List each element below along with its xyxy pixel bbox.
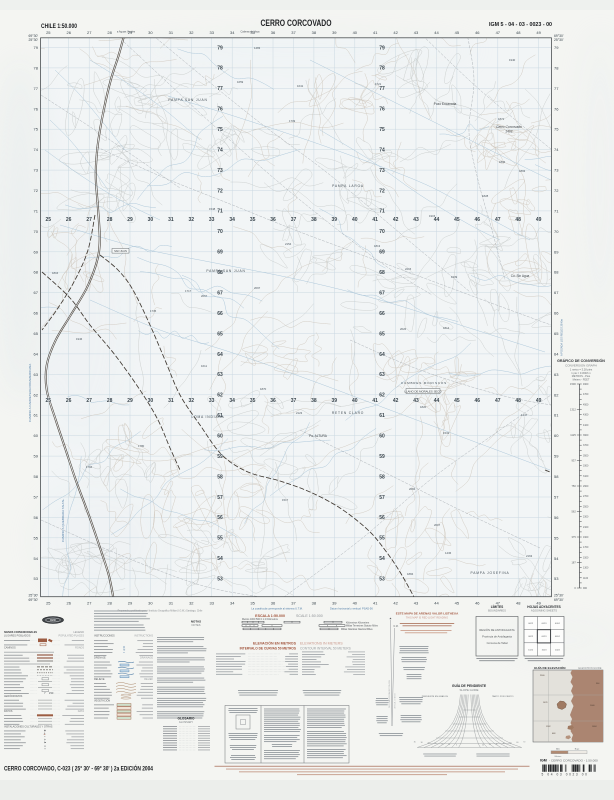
svg-text:63: 63 [554,372,559,377]
svg-text:39: 39 [332,217,338,223]
svg-text:1517: 1517 [282,498,289,502]
svg-text:46: 46 [475,398,481,404]
svg-text:1780: 1780 [138,444,145,448]
svg-text:63: 63 [217,372,223,378]
svg-text:70: 70 [523,742,525,744]
svg-text:4100: 4100 [583,424,589,427]
svg-text:HOJAS ADYACENTES: HOJAS ADYACENTES [527,605,560,609]
svg-text:49: 49 [536,217,542,223]
svg-text:Bajo: Bajo [575,748,580,750]
svg-text:33: 33 [209,600,214,605]
svg-text:57: 57 [379,495,385,501]
svg-text:PENDIENTE EN GRADOS: PENDIENTE EN GRADOS [422,695,449,698]
svg-text:28: 28 [107,398,113,404]
svg-text:31: 31 [168,398,174,404]
svg-text:64: 64 [217,352,223,358]
svg-text:2067: 2067 [201,294,208,298]
svg-text:76: 76 [379,107,385,113]
svg-text:30: 30 [421,742,423,744]
svg-text:ADJOINING SHEETS: ADJOINING SHEETS [531,609,557,613]
svg-text:RELIEF: RELIEF [144,678,153,681]
svg-text:37: 37 [291,600,296,605]
svg-text:RELIEVE: RELIEVE [94,678,105,681]
svg-text:SIGNOS CONVENCIONALES: SIGNOS CONVENCIONALES [4,630,37,634]
svg-text:59: 59 [554,454,559,459]
svg-text:71: 71 [554,208,559,213]
svg-text:1447: 1447 [521,413,528,417]
svg-text:25: 25 [46,398,52,404]
svg-text:ELEVACIÓN EN METROS: ELEVACIÓN EN METROS [253,641,297,646]
svg-text:4700: 4700 [583,393,589,396]
svg-text:1023: 1023 [542,649,548,651]
svg-text:77: 77 [554,86,559,91]
svg-text:1794: 1794 [86,465,93,469]
svg-text:METROS - Pies: METROS - Pies [572,374,591,378]
svg-text:79: 79 [217,45,223,51]
svg-text:PAMPA SAN JUAN: PAMPA SAN JUAN [168,98,207,102]
svg-text:60: 60 [554,433,559,438]
svg-text:AERÓDROMOS: AERÓDROMOS [4,695,23,698]
svg-text:38: 38 [311,217,317,223]
svg-text:55: 55 [554,535,559,540]
svg-text:26: 26 [66,600,71,605]
svg-text:PAMPA SAN JUAN: PAMPA SAN JUAN [206,269,245,273]
svg-text:37: 37 [291,30,296,35]
svg-text:79: 79 [379,45,385,51]
svg-text:38: 38 [312,30,317,35]
svg-text:1820: 1820 [420,405,427,409]
svg-text:54: 54 [34,556,39,561]
svg-text:2300: 2300 [583,516,589,519]
svg-text:62: 62 [554,392,559,397]
svg-text:73: 73 [379,168,385,174]
svg-text:69°30': 69°30' [554,598,564,602]
svg-text:NOTAS: NOTAS [191,620,201,624]
svg-text:46: 46 [475,600,480,605]
svg-text:47: 47 [495,217,501,223]
svg-text:25: 25 [46,217,52,223]
svg-text:1900: 1900 [583,536,589,539]
svg-text:46: 46 [475,217,481,223]
svg-text:IGM: IGM [540,758,547,762]
svg-text:SCALE 1:50.000: SCALE 1:50.000 [296,614,323,618]
svg-text:★: ★ [389,617,392,621]
svg-text:0023: 0023 [542,636,548,638]
svg-text:78: 78 [379,66,385,72]
svg-text:78: 78 [217,66,223,72]
svg-text:INSTRUCTIONS: INSTRUCTIONS [134,635,153,638]
svg-text:2215: 2215 [405,267,412,271]
svg-text:76: 76 [34,106,39,111]
svg-text:49: 49 [536,398,542,404]
svg-text:1806: 1806 [499,160,506,164]
svg-text:GRÁFICO DE CONVERSIÓN: GRÁFICO DE CONVERSIÓN [557,358,605,363]
svg-text:LÍMITES: LÍMITES [491,604,504,609]
svg-text:77: 77 [379,86,385,92]
svg-text:55: 55 [379,536,385,542]
svg-text:70: 70 [34,229,39,234]
svg-text:28: 28 [107,600,112,605]
svg-text:#30: #30 [49,691,54,695]
svg-text:1500: 1500 [570,382,576,386]
svg-text:36: 36 [271,30,276,35]
svg-text:25: 25 [46,600,51,605]
svg-text:64: 64 [554,351,559,356]
svg-text:64: 64 [34,351,39,356]
svg-text:70: 70 [554,229,559,234]
svg-text:69: 69 [554,249,559,254]
svg-text:36: 36 [271,600,276,605]
svg-text:CAMINO A QUEBRADA TALTAL: CAMINO A QUEBRADA TALTAL [61,499,65,542]
svg-text:38: 38 [312,600,317,605]
svg-text:36: 36 [270,398,276,404]
svg-text:ANNUAL CHANGE: ANNUAL CHANGE [394,692,397,708]
svg-text:40: 40 [353,600,358,605]
svg-text:33: 33 [209,398,215,404]
svg-text:67: 67 [217,291,223,297]
svg-text:62: 62 [217,393,223,399]
svg-text:1125: 1125 [570,433,576,437]
svg-text:49: 49 [536,30,541,35]
svg-text:68: 68 [34,270,39,275]
svg-text:41: 41 [372,398,378,404]
svg-text:34: 34 [229,217,235,223]
svg-text:30: 30 [496,744,498,746]
svg-text:56: 56 [217,515,223,521]
svg-text:53: 53 [379,577,385,583]
svg-text:1828: 1828 [482,194,489,198]
svg-text:BOUNDARIES: BOUNDARIES [488,609,506,613]
svg-text:25: 25 [428,743,430,745]
svg-text:43: 43 [413,398,419,404]
svg-text:34: 34 [229,398,235,404]
svg-text:SAN JUAN: SAN JUAN [114,249,127,253]
svg-text:1915: 1915 [429,214,436,218]
svg-text:A POSADA LOS RIELES 28 Km: A POSADA LOS RIELES 28 Km [560,319,564,356]
svg-text:1641: 1641 [297,84,304,88]
svg-text:20: 20 [434,743,436,745]
svg-text:RETEN CLARO: RETEN CLARO [332,411,364,415]
svg-text:62: 62 [379,393,385,399]
svg-text:39: 39 [332,398,338,404]
svg-text:30: 30 [148,30,153,35]
svg-text:59: 59 [34,454,39,459]
svg-text:Cerro Corcovado: Cerro Corcovado [496,125,522,129]
svg-text:1483: 1483 [254,46,261,50]
svg-text:1717: 1717 [185,289,192,293]
svg-text:63: 63 [379,372,385,378]
svg-text:562: 562 [571,510,576,514]
svg-text:DRAINAGE: DRAINAGE [140,657,153,660]
svg-text:N.M.: N.M. [394,625,399,628]
svg-text:900: 900 [583,587,588,590]
svg-text:64: 64 [379,352,385,358]
svg-text:1870: 1870 [260,387,267,391]
svg-text:1939: 1939 [451,275,458,279]
svg-text:NOTES: NOTES [192,623,201,627]
svg-text:34: 34 [230,600,235,605]
svg-text:69°30': 69°30' [28,598,38,602]
svg-text:SLOPE GUIDE: SLOPE GUIDE [460,688,479,692]
svg-text:56: 56 [34,515,39,520]
svg-text:45: 45 [454,398,460,404]
svg-text:Comuna de Taltal: Comuna de Taltal [487,641,508,645]
svg-text:39: 39 [332,30,337,35]
svg-text:1436: 1436 [445,551,452,555]
svg-text:La cuadrícula corresponde al s: La cuadrícula corresponde al sistema U.T… [251,607,303,611]
svg-text:Y: Y [44,691,46,695]
svg-text:0624: 0624 [555,636,561,638]
svg-text:32: 32 [189,30,194,35]
svg-text:CONVERSION GRAPH: CONVERSION GRAPH [565,363,597,367]
svg-text:ESTE MAPA DE ARENAS VALOR LIST: ESTE MAPA DE ARENAS VALOR LISTHEUA [396,612,459,616]
svg-text:69: 69 [379,250,385,256]
svg-text:66: 66 [217,311,223,317]
svg-text:78: 78 [554,65,559,70]
svg-text:65: 65 [554,331,559,336]
svg-text:72: 72 [379,188,385,194]
svg-text:68: 68 [554,270,559,275]
svg-text:70: 70 [217,229,223,235]
svg-text:70: 70 [379,229,385,235]
svg-text:58: 58 [379,474,385,480]
svg-text:1611: 1611 [201,364,207,368]
svg-text:2123: 2123 [296,411,303,415]
svg-text:31: 31 [169,30,174,35]
svg-text:44: 44 [434,30,439,35]
svg-text:26: 26 [66,217,72,223]
svg-text:CAMINOS: CAMINOS [4,647,16,650]
svg-text:187: 187 [571,561,576,565]
svg-text:0622: 0622 [528,636,534,638]
svg-text:46: 46 [475,30,480,35]
svg-text:50: 50 [510,743,512,745]
svg-text:Metros 1000 500: Metros 1000 500 0 1 2 Kilómetros [242,618,279,621]
svg-text:3300: 3300 [583,465,589,468]
svg-text:Provincia de Antofagasta: Provincia de Antofagasta [482,635,512,639]
svg-text:25: 25 [46,30,51,35]
svg-text:42: 42 [393,30,398,35]
svg-text:DRENAJE: DRENAJE [94,657,106,660]
svg-text:39: 39 [332,600,337,605]
svg-text:2007: 2007 [434,523,441,527]
svg-text:65: 65 [379,331,385,337]
svg-text:IGM 5 - 04 - 03 - 0023 - 00: IGM 5 - 04 - 03 - 0023 - 00 [489,22,552,28]
svg-text:57: 57 [217,495,223,501]
svg-text:71: 71 [379,209,385,215]
svg-text:75: 75 [379,127,385,133]
svg-text:26: 26 [66,30,71,35]
svg-text:57: 57 [554,495,559,500]
svg-text:THIS MAP IS RED LIGHT READING: THIS MAP IS RED LIGHT READING [406,615,448,619]
svg-text:58: 58 [34,474,39,479]
svg-text:ELEVATIONS IN METERS: ELEVATIONS IN METERS [300,642,343,646]
svg-text:2500: 2500 [583,505,589,508]
svg-text:POPULATED PLACES: POPULATED PLACES [58,635,84,638]
svg-text:78: 78 [34,65,39,70]
svg-text:VEGETACIÓN: VEGETACIÓN [94,700,110,703]
svg-text:1 pie = 0.3048 m: 1 pie = 0.3048 m [571,371,590,375]
svg-text:LLANO DE MORALES SECO: LLANO DE MORALES SECO [405,389,443,393]
svg-text:48: 48 [516,30,521,35]
svg-text:1893: 1893 [519,169,526,173]
svg-text:Po. ALTURA: Po. ALTURA [309,434,328,438]
svg-text:54: 54 [379,556,385,562]
svg-text:45: 45 [455,600,460,605]
svg-text:1532: 1532 [443,431,450,435]
svg-text:4900: 4900 [583,383,589,386]
svg-text:60: 60 [516,742,518,744]
svg-text:1946: 1946 [76,337,83,341]
svg-text:3700: 3700 [583,444,589,447]
svg-text:a Aguas Verdes: a Aguas Verdes [117,30,136,34]
svg-text:1721: 1721 [375,82,382,86]
svg-text:30: 30 [148,398,154,404]
svg-text:60: 60 [379,434,385,440]
svg-text:CHILE 1:50.000: CHILE 1:50.000 [41,23,77,30]
svg-text:48: 48 [516,600,521,605]
svg-text:75: 75 [554,127,559,132]
svg-text:Pozo Encanada: Pozo Encanada [434,102,457,106]
svg-text:58: 58 [217,474,223,480]
svg-text:68: 68 [379,270,385,276]
svg-text:28: 28 [107,217,113,223]
svg-text:55: 55 [217,536,223,542]
svg-text:0022: 0022 [528,623,534,625]
svg-text:LOMA INDIANA: LOMA INDIANA [191,415,224,419]
svg-text:74: 74 [379,148,385,154]
svg-text:27: 27 [87,600,92,605]
svg-text:3100: 3100 [583,475,589,478]
svg-text:4300: 4300 [583,414,589,417]
svg-text:76: 76 [217,107,223,113]
svg-text:2097: 2097 [254,286,261,290]
svg-text:36: 36 [270,217,276,223]
svg-text:77: 77 [217,86,223,92]
svg-text:4500: 4500 [583,403,589,406]
svg-text:63: 63 [34,372,39,377]
svg-text:DATOS: DATOS [4,710,13,713]
svg-text:72: 72 [217,188,223,194]
svg-text:48: 48 [515,398,521,404]
svg-text:74: 74 [34,147,39,152]
svg-text:2402: 2402 [505,130,512,134]
svg-text:71: 71 [217,209,223,215]
svg-text:67: 67 [379,291,385,297]
svg-text:29: 29 [128,600,133,605]
svg-text:- CERRO CORCOVADO - 1:50.000: - CERRO CORCOVADO - 1:50.000 [549,758,598,762]
svg-text:35: 35 [250,217,256,223]
svg-text:10: 10 [448,744,450,746]
svg-text:GLOSARIO: GLOSARIO [177,717,195,721]
svg-text:61: 61 [34,413,39,418]
svg-text:42: 42 [393,217,399,223]
svg-text:54: 54 [554,556,559,561]
svg-text:79: 79 [34,45,39,50]
svg-text:2163: 2163 [526,554,533,558]
svg-text:32: 32 [189,398,195,404]
svg-text:41: 41 [373,30,378,35]
svg-text:1816: 1816 [52,271,59,275]
svg-text:35: 35 [250,600,255,605]
svg-text:INSTALACIONES CULTURALES Y OTR: INSTALACIONES CULTURALES Y OTRAS [4,726,53,729]
svg-text:43: 43 [413,217,419,223]
svg-text:41: 41 [372,217,378,223]
svg-text:1 metro = 3.28 pies: 1 metro = 3.28 pies [570,367,593,371]
svg-text:47: 47 [495,398,501,404]
svg-text:45: 45 [454,217,460,223]
svg-text:73: 73 [554,168,559,173]
svg-text:67: 67 [554,290,559,295]
svg-text:43: 43 [414,600,419,605]
svg-text:1814: 1814 [443,326,450,330]
svg-text:15: 15 [441,744,443,746]
svg-text:1940: 1940 [509,58,516,62]
svg-text:GLOSSARY: GLOSSARY [179,720,193,724]
svg-text:LEGEND: LEGEND [73,630,84,634]
svg-text:61: 61 [554,413,559,418]
svg-text:67: 67 [34,290,39,295]
svg-text:CERRO CORCOVADO: CERRO CORCOVADO [261,18,332,28]
svg-text:CUMBRES MORISCOS: CUMBRES MORISCOS [401,381,447,385]
svg-text:1300: 1300 [583,567,589,570]
svg-text:74: 74 [217,148,223,154]
svg-text:5: 5 [456,745,457,747]
svg-text:29: 29 [128,30,133,35]
svg-text:2154: 2154 [285,242,292,246]
svg-text:3900: 3900 [583,434,589,437]
svg-text:60: 60 [217,434,223,440]
svg-text:29: 29 [127,217,133,223]
svg-text:INSTRUCCIONES: INSTRUCCIONES [94,635,115,638]
svg-text:5 04 03 0023 00: 5 04 03 0023 00 [541,773,588,777]
svg-text:28: 28 [107,30,112,35]
svg-text:34: 34 [230,30,235,35]
svg-text:54: 54 [217,556,223,562]
svg-text:62: 62 [34,392,39,397]
svg-text:40: 40 [352,217,358,223]
svg-text:73: 73 [217,168,223,174]
svg-text:0024: 0024 [555,623,561,625]
svg-text:42: 42 [393,398,399,404]
svg-text:43: 43 [414,30,419,35]
svg-text:59: 59 [217,454,223,460]
svg-text:69: 69 [217,250,223,256]
svg-text:750: 750 [571,484,576,488]
svg-text:1735: 1735 [150,309,157,313]
svg-text:53: 53 [554,576,559,581]
svg-text:44: 44 [434,398,440,404]
svg-text:1100: 1100 [583,577,589,580]
svg-text:1024: 1024 [555,649,561,651]
svg-text:69: 69 [34,249,39,254]
svg-text:2026: 2026 [400,327,407,331]
svg-text:Meters - FEET: Meters - FEET [573,378,590,382]
svg-text:73: 73 [34,168,39,173]
svg-text:66: 66 [379,311,385,317]
svg-text:Millas Náuticas Nautical Mil: Millas Náuticas Nautical Miles [341,628,373,631]
svg-text:Datum horizontal y vertical: P: Datum horizontal y vertical: PSAD-56 [330,607,373,611]
svg-text:1871: 1871 [498,117,505,121]
svg-text:35: 35 [250,398,256,404]
svg-text:60: 60 [34,433,39,438]
svg-text:57: 57 [34,495,39,500]
svg-text:25°30': 25°30' [28,38,38,42]
svg-text:1659: 1659 [237,80,244,84]
svg-text:DECLINACION MAGNETICA 2004: DECLINACION MAGNETICA 2004 [388,680,391,708]
svg-text:INTERVALO DE CURVAS 50 METROS: INTERVALO DE CURVAS 50 METROS [240,647,296,651]
svg-text:72: 72 [554,188,559,193]
